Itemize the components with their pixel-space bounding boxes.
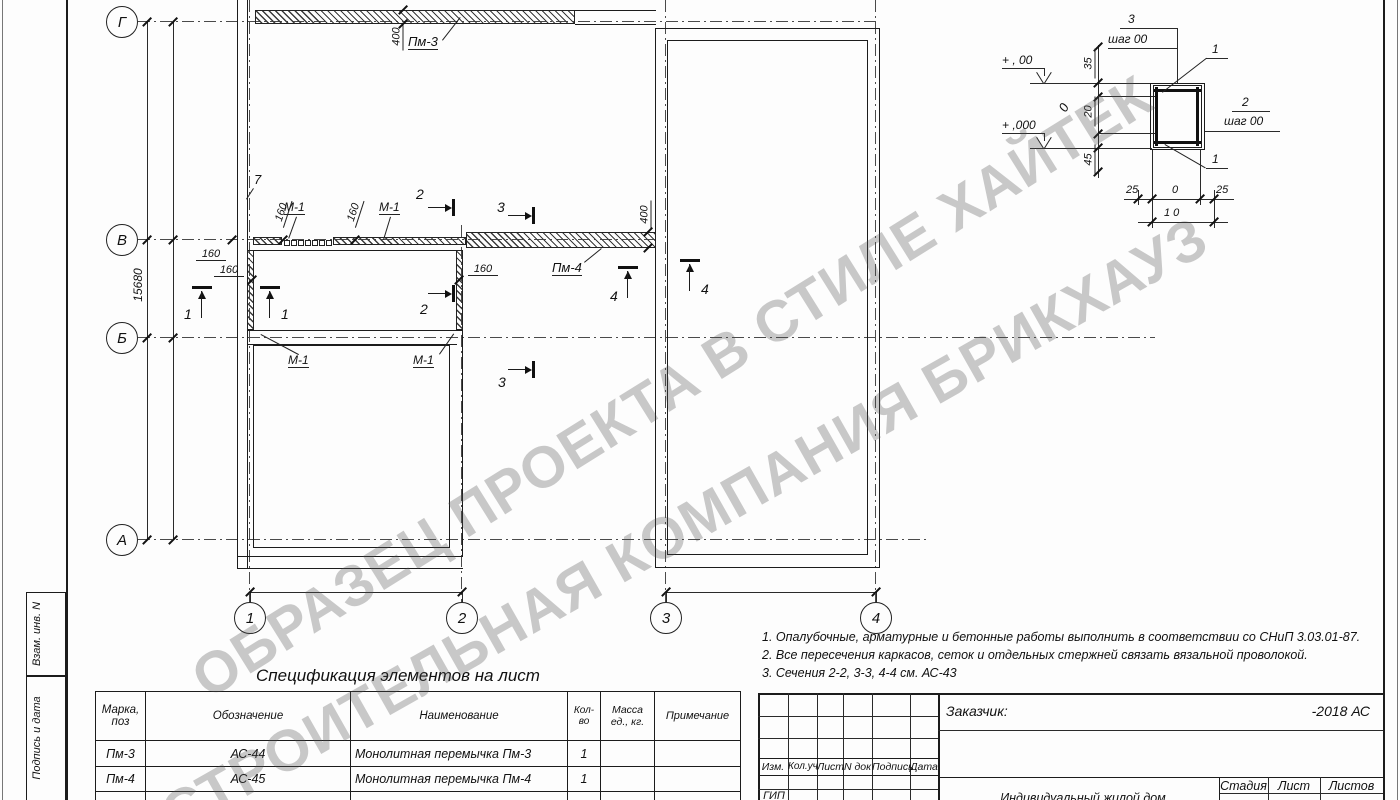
axis-bubble-A: А: [106, 524, 138, 556]
spec-cell: [655, 792, 741, 800]
right-block-inner-wall: [667, 40, 868, 555]
titleblock-line: [817, 693, 818, 800]
spec-cell: [146, 792, 351, 800]
spec-cell: АС-44: [146, 741, 351, 767]
stage-header-list: Лист: [1268, 779, 1320, 793]
dim-160: 160: [468, 263, 498, 276]
dim-160: 160: [196, 248, 226, 261]
callout-line: [1232, 111, 1270, 112]
spec-row: Пм-3 АС-44 Монолитная перемычка Пм-3 1: [96, 741, 741, 767]
spec-table: Марка, поз Обозначение Наименование Кол-…: [95, 691, 741, 800]
spec-cell: Монолитная перемычка Пм-3: [351, 741, 568, 767]
section-label-1: 1: [184, 306, 192, 322]
dim-400-rot: 400: [639, 201, 652, 229]
dim-line: [1124, 199, 1234, 200]
titleblock-line: [758, 758, 938, 759]
rebar-bar: [1154, 141, 1201, 144]
mesh-square: [298, 240, 304, 246]
lower-room-wall: [253, 345, 450, 548]
section-arrow-icon: [445, 204, 452, 212]
section-arrow-icon: [525, 212, 532, 220]
titleblock-line: [1219, 793, 1383, 794]
dim-10: 1 0: [1164, 207, 1179, 219]
section-mark-cap: [618, 266, 638, 269]
dim-line: [173, 22, 174, 540]
callout-line: [1108, 48, 1177, 49]
section-mark-cap: [680, 259, 700, 262]
wall-line: [237, 0, 238, 568]
stamp-label-vzam: Взам. инв. N: [31, 592, 45, 676]
dim-line: [250, 592, 462, 593]
dim-total-vertical: 15680: [131, 253, 145, 317]
titleblock-line: [938, 730, 1383, 731]
axis-label: 1: [246, 610, 254, 627]
axis-bubble-1: 1: [234, 602, 266, 634]
frame-left: [66, 0, 68, 800]
mesh-square: [291, 240, 297, 246]
dim-0: 0: [1172, 184, 1178, 196]
dim-line: [666, 592, 876, 593]
titleblock-line: [788, 693, 789, 800]
wall-line: [237, 556, 463, 557]
wall-line: [237, 568, 463, 569]
section-shaft: [269, 291, 270, 318]
callout-line: [1177, 28, 1178, 84]
mesh-square: [284, 240, 290, 246]
stage-header-stadia: Стадия: [1219, 779, 1268, 793]
callout-line: [1206, 168, 1228, 169]
customer-label: Заказчик:: [946, 703, 1008, 719]
axis-label: 4: [872, 610, 880, 627]
elevation-mark-top: + , 00: [1002, 53, 1032, 67]
section-arrow-icon: [525, 366, 532, 374]
dim-45: 45: [1083, 145, 1096, 175]
spec-header-name: Наименование: [351, 692, 568, 741]
callout-1: 1: [1212, 42, 1219, 56]
section-label-1: 1: [281, 306, 289, 322]
bubble-stem: [462, 592, 463, 602]
callout-line: [1120, 28, 1177, 29]
section-mark-bar: [452, 199, 455, 216]
section-label-3: 3: [498, 374, 506, 390]
axis-bubble-G: Г: [106, 6, 138, 38]
section-label-2: 2: [416, 186, 424, 202]
rev-header-data: Дата: [910, 761, 938, 773]
spec-cell: 1: [568, 767, 601, 792]
callout-line: [1205, 131, 1280, 132]
dim-line: [147, 22, 148, 540]
note-line-2: 2. Все пересечения каркасов, сеток и отд…: [762, 648, 1308, 662]
spec-row: Пм-4 АС-45 Монолитная перемычка Пм-4 1: [96, 767, 741, 792]
section-label-4: 4: [701, 281, 709, 297]
extension-line: [1152, 150, 1153, 228]
dim-35: 35: [1083, 49, 1096, 79]
spec-cell: Монолитная перемычка Пм-4: [351, 767, 568, 792]
rev-header-koluch: Кол.уч: [788, 761, 817, 772]
spec-cell: [568, 792, 601, 800]
axis-bubble-B: Б: [106, 322, 138, 354]
dim-20: 20: [1083, 97, 1096, 127]
dim-25: 25: [1216, 184, 1228, 196]
axis-line-B: [138, 337, 1155, 338]
section-shaft: [201, 291, 202, 318]
elevation-arrow-icon: [1036, 72, 1044, 84]
axis-label: Г: [118, 14, 126, 31]
callout-step: шаг 00: [1224, 114, 1263, 128]
project-name: Индивидуальный жилой дом: [948, 791, 1218, 800]
wall-hatched: [456, 250, 463, 330]
rebar-bar: [1196, 87, 1199, 146]
titleblock-line: [910, 693, 911, 800]
callout-2: 2: [1242, 95, 1249, 109]
spec-cell: Пм-4: [96, 767, 146, 792]
mark-m1: М-1: [379, 200, 400, 215]
elevation-arrow-icon: [1044, 137, 1052, 149]
spec-header-qty: Кол-во: [568, 692, 601, 741]
leader-line: [584, 248, 602, 263]
spec-cell: АС-45: [146, 767, 351, 792]
spec-cell: [351, 792, 568, 800]
axis-label: Б: [117, 330, 127, 347]
stamp-label-podpis: Подпись и дата: [31, 693, 45, 783]
section-shaft: [627, 271, 628, 298]
titleblock-line: [843, 693, 844, 800]
spec-row-empty: [96, 792, 741, 800]
spec-cell: [96, 792, 146, 800]
callout-step: шаг 00: [1108, 32, 1147, 46]
doc-code: -2018 АС: [1230, 703, 1370, 719]
sheet-edge-right: [1397, 0, 1398, 800]
spec-cell: [601, 792, 655, 800]
bubble-stem: [250, 592, 251, 602]
elevation-leader: [1002, 133, 1044, 134]
section-mark-bar: [452, 285, 455, 302]
elevation-mark-bottom: + ,000: [1002, 118, 1036, 132]
mesh-square: [305, 240, 311, 246]
wall-hatched: [247, 250, 254, 330]
wall-line: [247, 330, 463, 331]
axis-label: 3: [662, 610, 670, 627]
spec-header-mass: Масса ед., кг.: [601, 692, 655, 741]
elevation-leader: [1044, 133, 1045, 141]
lintel-label-pm4: Пм-4: [552, 260, 582, 276]
sheet-edge-left: [2, 0, 3, 800]
axis-bubble-V: В: [106, 224, 138, 256]
dim-160: 160: [214, 264, 244, 277]
wall-line: [254, 250, 456, 251]
axis-bubble-3: 3: [650, 602, 682, 634]
lintel-label-pm3: Пм-3: [408, 34, 438, 50]
titleblock-line: [758, 738, 938, 739]
dim-0: 0: [1055, 101, 1072, 115]
section-mark-cap: [192, 286, 212, 289]
wall-line: [462, 330, 463, 556]
spec-cell: [601, 741, 655, 767]
rev-header-ndok: N док: [843, 761, 872, 773]
elevation-arrow-icon: [1044, 72, 1052, 84]
mesh-square: [319, 240, 325, 246]
pos-7: 7: [254, 172, 261, 187]
section-label-3: 3: [497, 199, 505, 215]
section-mark-bar: [532, 207, 535, 224]
spec-cell: Пм-3: [96, 741, 146, 767]
lintel-pm3: [255, 10, 575, 24]
callout-1: 1: [1212, 152, 1219, 166]
axis-label: А: [117, 532, 127, 549]
spec-cell: [601, 767, 655, 792]
titleblock-line: [758, 716, 938, 717]
drawing-sheet: Взам. инв. N Подпись и дата Г В Б А 1 2 …: [0, 0, 1400, 800]
spec-header-note: Примечание: [655, 692, 741, 741]
rebar-bar: [1155, 87, 1158, 146]
lintel-pm4: [466, 232, 656, 248]
spec-header-mark: Марка, поз: [96, 692, 146, 741]
axis-label: 2: [458, 610, 466, 627]
section-arrow-icon: [445, 290, 452, 298]
spec-cell: [655, 767, 741, 792]
dim-160-rot: 160: [343, 197, 364, 228]
rev-header-izm: Изм.: [758, 761, 788, 773]
axis-label: В: [117, 232, 127, 249]
section-shaft: [689, 264, 690, 291]
titleblock-line: [758, 775, 938, 776]
spec-cell: 1: [568, 741, 601, 767]
section-label-4: 4: [610, 288, 618, 304]
dim-chain-line: [1098, 45, 1099, 178]
note-line-1: 1. Опалубочные, арматурные и бетонные ра…: [762, 630, 1360, 644]
rev-header-podpis: Подпись: [872, 761, 910, 773]
spec-table-title: Спецификация элементов на лист: [256, 666, 540, 686]
section-mark-bar: [532, 361, 535, 378]
rev-header-list: Лист: [817, 761, 843, 773]
extension-line: [1098, 133, 1158, 134]
axis-bubble-2: 2: [446, 602, 478, 634]
wall-line: [575, 24, 656, 25]
mesh-square: [312, 240, 318, 246]
dim-25: 25: [1126, 184, 1138, 196]
mark-m1: М-1: [413, 353, 434, 368]
mesh-square: [326, 240, 332, 246]
titleblock-line: [872, 693, 873, 800]
titleblock-line: [938, 693, 940, 800]
frame-right: [1383, 0, 1385, 800]
bubble-stem: [876, 592, 877, 602]
stage-header-listov: Листов: [1320, 779, 1383, 793]
callout-3: 3: [1128, 12, 1135, 26]
extension-line: [1030, 83, 1152, 84]
section-label-2: 2: [420, 301, 428, 317]
titleblock-line: [758, 693, 760, 800]
bubble-stem: [666, 592, 667, 602]
leader-line: [288, 217, 297, 239]
extension-line: [1098, 96, 1158, 97]
note-line-3: 3. Сечения 2-2, 3-3, 4-4 см. АС-43: [762, 666, 957, 680]
section-mark-cap: [260, 286, 280, 289]
wall-line: [575, 10, 656, 11]
titleblock-line: [758, 693, 1383, 695]
gip-label: ГИП: [760, 790, 788, 800]
elevation-arrow-icon: [1036, 137, 1044, 149]
spec-cell: [655, 741, 741, 767]
elevation-leader: [1002, 68, 1044, 69]
callout-line: [1206, 58, 1228, 59]
spec-header-designation: Обозначение: [146, 692, 351, 741]
elevation-leader: [1044, 68, 1045, 76]
rebar-stirrup: [1153, 85, 1202, 148]
